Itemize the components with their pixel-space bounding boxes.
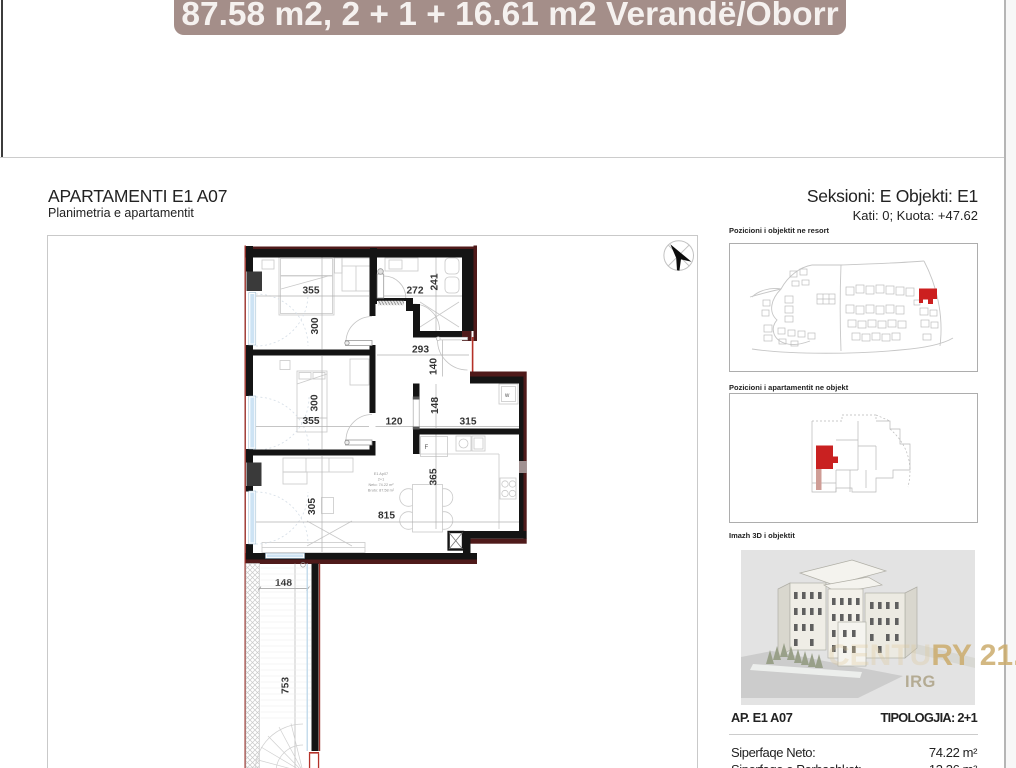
svg-text:300: 300 (310, 317, 321, 334)
svg-text:365: 365 (429, 468, 440, 485)
svg-text:140: 140 (429, 358, 440, 375)
svg-text:305: 305 (307, 498, 318, 515)
svg-text:241: 241 (430, 273, 441, 290)
svg-text:148: 148 (275, 578, 292, 589)
svg-text:272: 272 (407, 286, 424, 297)
svg-text:815: 815 (378, 511, 395, 522)
svg-text:120: 120 (386, 417, 403, 428)
svg-text:315: 315 (460, 417, 477, 428)
svg-text:355: 355 (303, 286, 320, 297)
svg-text:Neto: 74.22 m²: Neto: 74.22 m² (368, 483, 394, 487)
svg-text:753: 753 (281, 677, 292, 694)
svg-text:293: 293 (412, 345, 429, 356)
svg-text:2+1: 2+1 (378, 478, 384, 482)
svg-text:300: 300 (310, 394, 321, 411)
svg-text:Bruto: 87.58 m²: Bruto: 87.58 m² (368, 489, 395, 493)
svg-text:148: 148 (430, 397, 441, 414)
svg-text:w: w (504, 393, 510, 399)
svg-text:F: F (425, 445, 429, 451)
svg-text:355: 355 (303, 416, 320, 427)
svg-text:E1 Ap07: E1 Ap07 (374, 472, 388, 476)
